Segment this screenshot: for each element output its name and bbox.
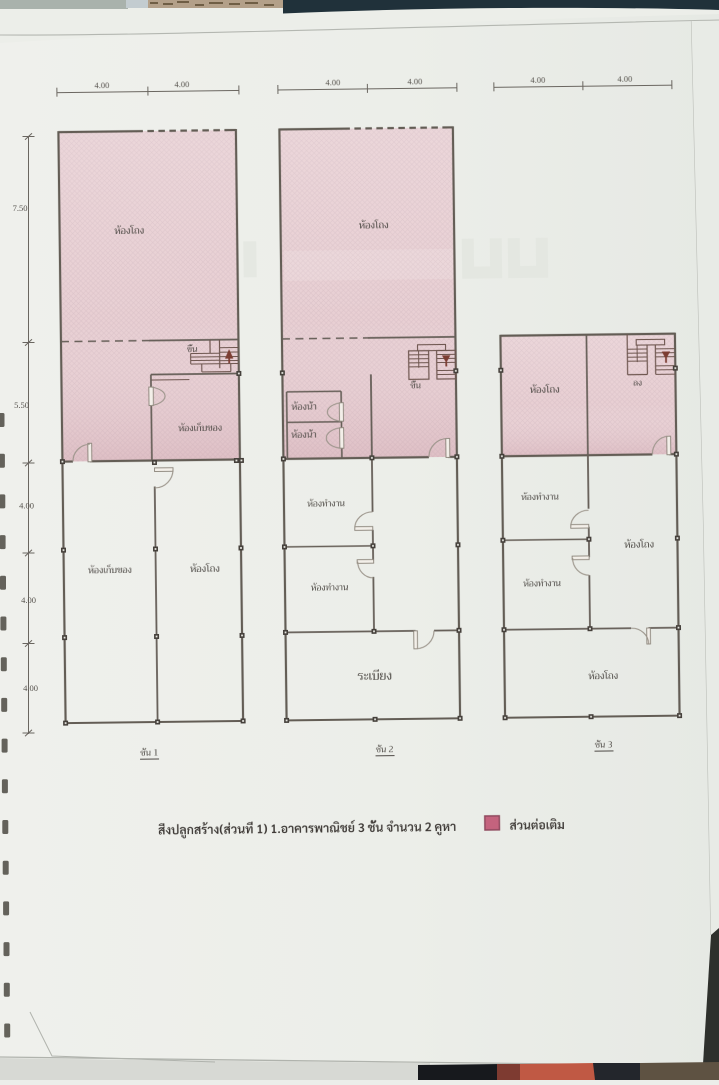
svg-text:5.50: 5.50 [14, 400, 29, 410]
svg-text:4.00: 4.00 [617, 74, 632, 84]
svg-text:4.00: 4.00 [407, 76, 422, 86]
svg-text:4.00: 4.00 [94, 80, 109, 90]
svg-text:4.00: 4.00 [21, 595, 36, 605]
svg-text:4.00: 4.00 [325, 77, 340, 87]
svg-text:4.00: 4.00 [23, 683, 38, 693]
svg-text:7.50: 7.50 [13, 203, 28, 213]
svg-text:4.00: 4.00 [174, 79, 189, 89]
svg-text:4.00: 4.00 [19, 501, 34, 511]
svg-text:4.00: 4.00 [530, 75, 545, 85]
